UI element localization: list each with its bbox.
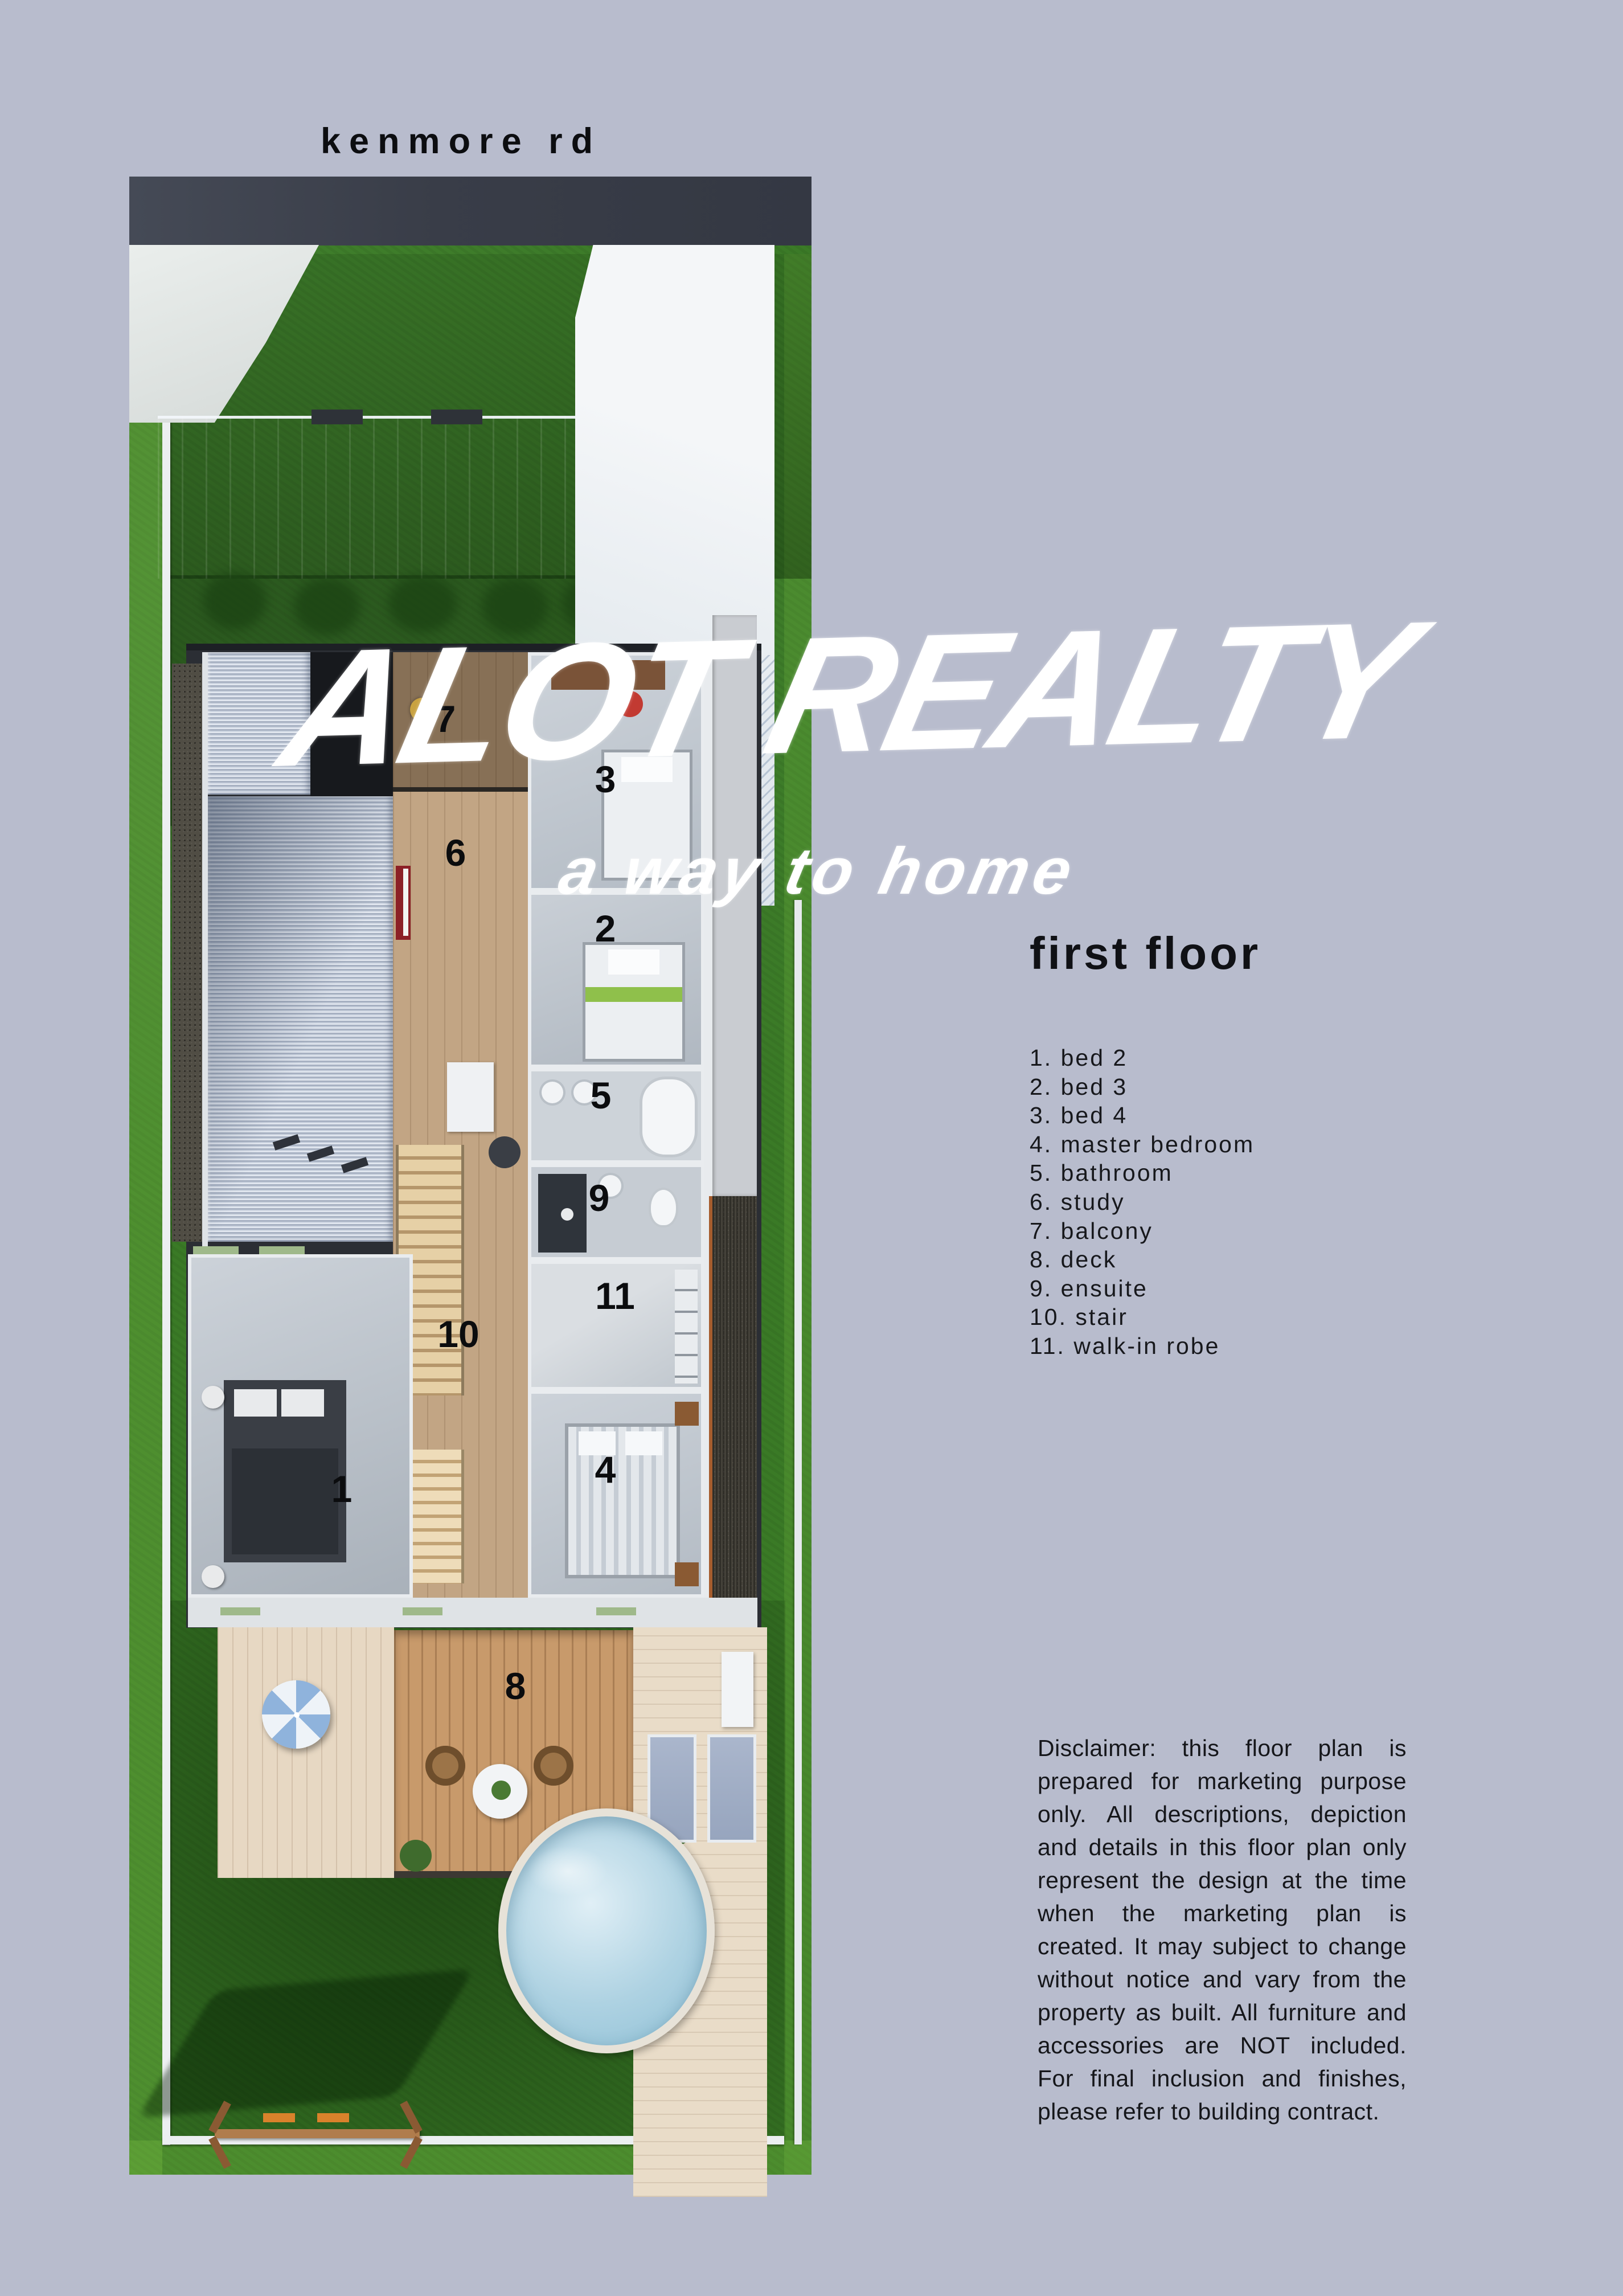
marker-walk-in-robe: 11 bbox=[595, 1277, 635, 1315]
study-chair bbox=[489, 1136, 520, 1168]
marker-stair: 10 bbox=[437, 1315, 479, 1353]
swing-set-beam bbox=[215, 2129, 420, 2138]
marker-master-bedroom: 4 bbox=[595, 1451, 616, 1488]
bed-3-bed bbox=[585, 945, 682, 1059]
dark-tile-roof-strip bbox=[712, 1196, 757, 1657]
sink bbox=[542, 1082, 563, 1103]
gravel-side-path bbox=[172, 664, 202, 1242]
nightstand bbox=[202, 1565, 224, 1588]
pillow bbox=[234, 1389, 277, 1417]
nightstand bbox=[202, 1386, 224, 1409]
window-planter bbox=[596, 1607, 636, 1615]
outdoor-bench bbox=[722, 1652, 753, 1727]
bathtub bbox=[642, 1079, 695, 1155]
marker-bed2: 1 bbox=[331, 1470, 353, 1508]
room-master-bedroom bbox=[528, 1390, 704, 1598]
roof-vent bbox=[431, 410, 482, 424]
marker-bed3: 2 bbox=[595, 910, 616, 947]
brand-title: ALOT REALTY bbox=[269, 594, 1509, 792]
legend-item-bed3: 2. bed 3 bbox=[1030, 1073, 1255, 1102]
timber-edge-line bbox=[709, 1196, 712, 1657]
legend-item-deck: 8. deck bbox=[1030, 1245, 1255, 1274]
legend-item-master-bedroom: 4. master bedroom bbox=[1030, 1130, 1255, 1159]
pillow bbox=[281, 1389, 324, 1417]
room-bed-2 bbox=[188, 1254, 413, 1598]
pillow bbox=[625, 1431, 662, 1455]
corrugated-roof-panel-lower bbox=[208, 796, 393, 1242]
marker-ensuite: 9 bbox=[589, 1179, 610, 1217]
window-planter bbox=[193, 1246, 239, 1254]
room-bed-3 bbox=[528, 891, 704, 1068]
legend-item-bathroom: 5. bathroom bbox=[1030, 1159, 1255, 1188]
window-planter bbox=[259, 1246, 305, 1254]
roof-panel-shade bbox=[208, 796, 393, 1242]
umbrella-center bbox=[294, 1712, 300, 1718]
pool-highlight bbox=[528, 1845, 608, 1897]
legend-item-balcony: 7. balcony bbox=[1030, 1217, 1255, 1246]
pillow bbox=[608, 949, 659, 975]
room-legend: 1. bed 2 2. bed 3 3. bed 4 4. master bed… bbox=[1030, 1043, 1255, 1361]
brand-tagline: a way to home bbox=[553, 833, 1084, 909]
floor-plan-render: 1 2 3 4 5 6 7 8 9 10 11 bbox=[129, 177, 811, 2175]
roof-vent bbox=[312, 410, 363, 424]
swimming-pool bbox=[498, 1808, 715, 2053]
sun-lounger bbox=[707, 1734, 756, 1843]
bush bbox=[203, 572, 266, 629]
table-plant bbox=[491, 1781, 511, 1800]
swing-seat bbox=[317, 2113, 349, 2122]
legend-item-bed4: 3. bed 4 bbox=[1030, 1101, 1255, 1130]
room-bathroom bbox=[528, 1068, 704, 1164]
legend-item-stair: 10. stair bbox=[1030, 1303, 1255, 1332]
marker-deck: 8 bbox=[505, 1667, 526, 1705]
legend-item-bed2: 1. bed 2 bbox=[1030, 1043, 1255, 1073]
fence-right bbox=[794, 900, 802, 2144]
window-planter bbox=[220, 1607, 260, 1615]
deck-plant bbox=[400, 1840, 432, 1872]
green-blanket-stripe bbox=[585, 987, 682, 1002]
side-table bbox=[675, 1402, 699, 1426]
deck-left-section bbox=[218, 1627, 394, 1878]
bed-2-bed bbox=[224, 1380, 346, 1562]
marker-bathroom: 5 bbox=[591, 1077, 612, 1114]
wicker-chair bbox=[425, 1746, 465, 1786]
master-bed bbox=[568, 1427, 677, 1575]
floor-plan-poster: { "colors": { "background": "#b8bccd", "… bbox=[0, 0, 1623, 2296]
legend-item-study: 6. study bbox=[1030, 1188, 1255, 1217]
floor-heading: first floor bbox=[1030, 927, 1261, 980]
rear-wall-band bbox=[188, 1598, 757, 1627]
robe-shelving bbox=[675, 1270, 698, 1384]
street-label: kenmore rd bbox=[321, 121, 601, 162]
shower bbox=[538, 1174, 587, 1253]
study-desk bbox=[447, 1062, 494, 1132]
toilet bbox=[651, 1190, 676, 1225]
legend-item-ensuite: 9. ensuite bbox=[1030, 1274, 1255, 1303]
swing-seat bbox=[263, 2113, 295, 2122]
blanket bbox=[232, 1448, 338, 1554]
legend-item-walk-in-robe: 11. walk-in robe bbox=[1030, 1332, 1255, 1361]
marker-study: 6 bbox=[445, 834, 466, 871]
disclaimer-text: Disclaimer: this floor plan is prepared … bbox=[1038, 1732, 1407, 2128]
road bbox=[129, 177, 811, 245]
room-ensuite bbox=[528, 1164, 704, 1260]
wicker-chair bbox=[534, 1746, 573, 1786]
shower-head bbox=[561, 1208, 573, 1221]
piano-keys bbox=[403, 869, 408, 936]
window-planter bbox=[403, 1607, 442, 1615]
side-table bbox=[675, 1562, 699, 1586]
